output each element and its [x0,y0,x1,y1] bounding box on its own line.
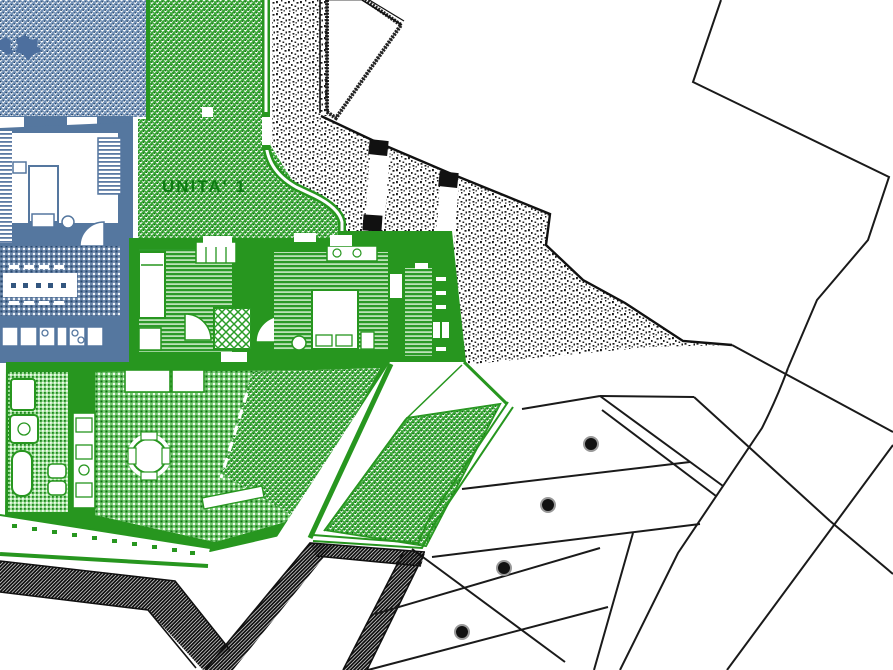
svg-text:UNITA' 1: UNITA' 1 [162,177,247,196]
